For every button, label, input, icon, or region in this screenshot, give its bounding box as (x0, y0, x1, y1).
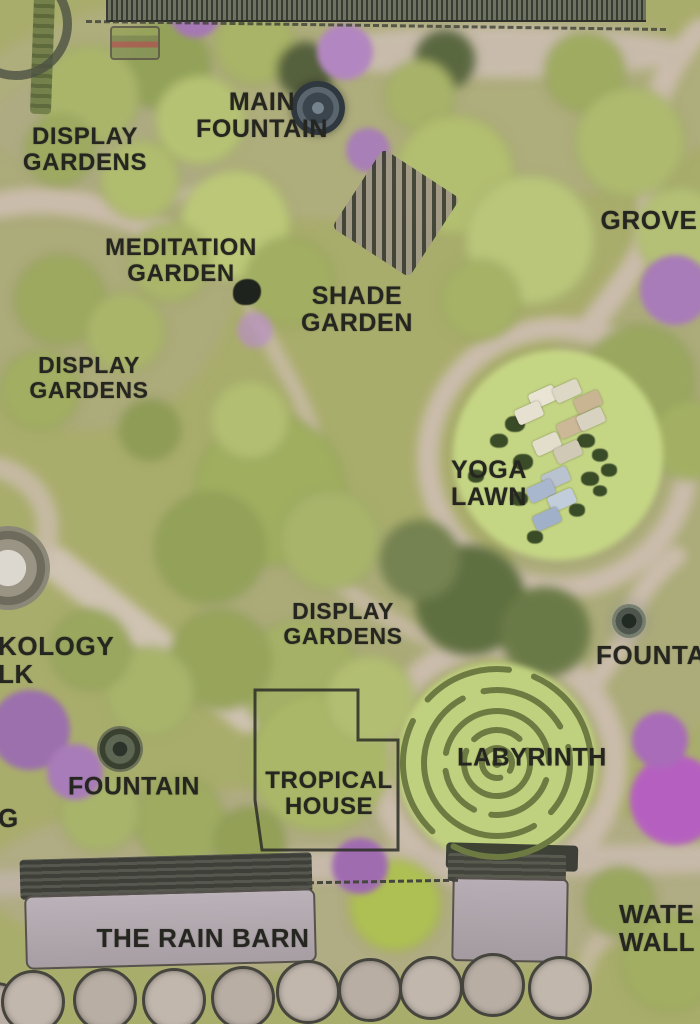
label-display-gardens-w: DISPLAYGARDENS (29, 353, 148, 403)
shrub-figure-8 (569, 504, 585, 517)
shrub-figure-9 (593, 485, 607, 496)
label-rain-barn: THE RAIN BARN (97, 924, 310, 952)
label-meditation-garden: MEDITATIONGARDEN (105, 235, 257, 287)
label-shade-garden: SHADEGARDEN (301, 283, 413, 337)
shrub-figure-5 (601, 464, 617, 477)
label-edge-g-clipped: G (0, 804, 19, 832)
label-grove: GROVE (601, 206, 698, 234)
shrub-figure-1 (490, 434, 508, 448)
shrub-figure-11 (527, 531, 543, 544)
label-water-wall-clipped: WATEWALL (619, 900, 695, 956)
label-yoga-lawn: YOGALAWN (451, 457, 527, 511)
label-display-gardens-nw: DISPLAYGARDENS (23, 124, 147, 176)
garden-site-plan-map: DISPLAYGARDENSMAINFOUNTAINGROVEMEDITATIO… (0, 0, 700, 1024)
shrub-figure-6 (581, 472, 599, 486)
label-fountain-left: FOUNTAIN (68, 774, 200, 801)
label-tropical-house: TROPICALHOUSE (265, 768, 392, 820)
shrub-figure-3 (592, 449, 608, 462)
label-ecology-walk-clipped: KOLOGYLK (0, 632, 114, 688)
label-main-fountain: MAINFOUNTAIN (196, 89, 328, 143)
label-fountain-right-clipped: FOUNTA (596, 641, 700, 669)
label-display-gardens-c: DISPLAYGARDENS (283, 599, 402, 649)
label-labyrinth: LABYRINTH (457, 745, 607, 772)
